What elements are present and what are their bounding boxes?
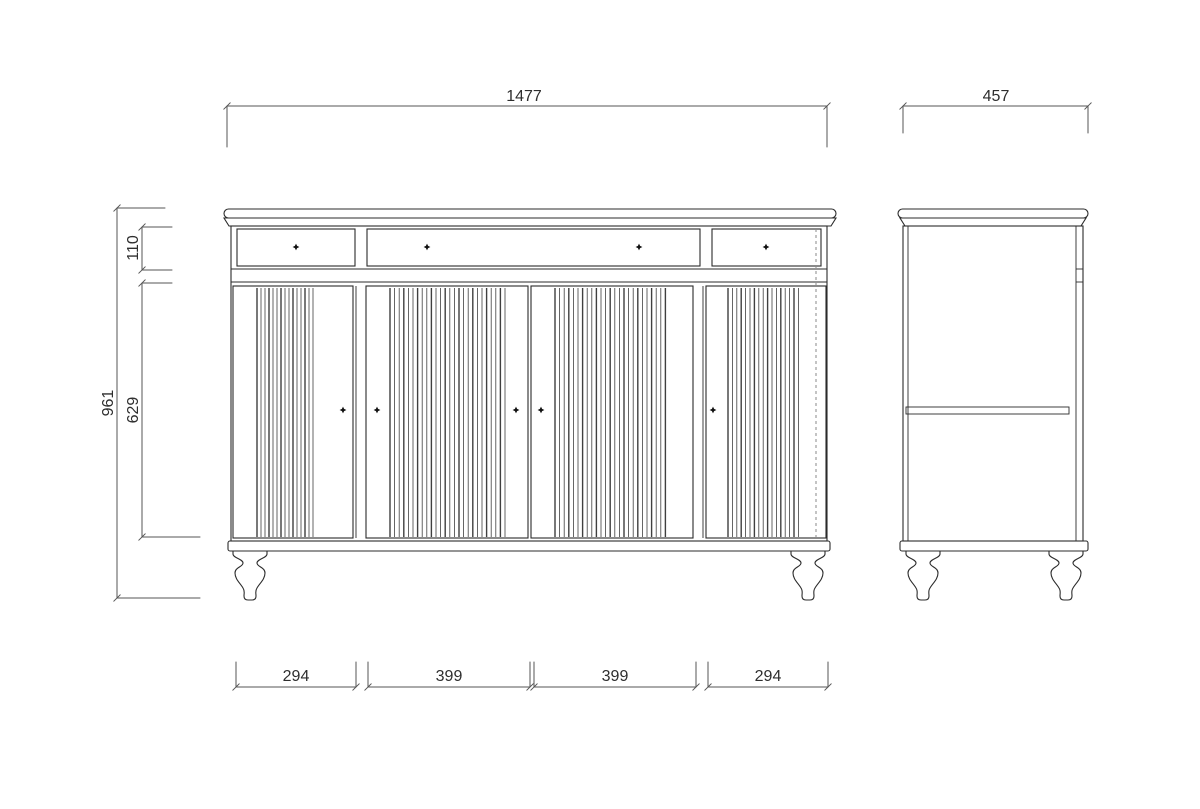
door-1-fluting [257,288,313,537]
knob-icon [293,244,300,251]
door-3-fluting [555,288,665,537]
knob-icon [374,407,381,414]
knob-icon [538,407,545,414]
front-mid-rail [231,269,827,282]
molding-cap [224,209,836,218]
door-4 [706,286,826,538]
dim-door-2-width-label: 399 [436,668,463,685]
drawer-center [367,229,700,266]
dim-door-4-width-label: 294 [755,668,782,685]
molding-cap [898,209,1088,218]
door-row [233,229,826,538]
side-view [898,209,1088,600]
dim-overall-width [224,103,830,147]
door-4-fluting [728,288,798,537]
drawer-row [237,229,821,266]
knob-icon [710,407,717,414]
side-top-molding [898,209,1088,226]
front-view [224,209,836,600]
dim-depth [900,103,1091,133]
knob-icon [513,407,520,414]
dim-overall-width-label: 1477 [506,88,542,105]
side-plinth [900,541,1088,551]
technical-drawing: 1477 457 961 110 [0,0,1200,809]
dim-door-height [139,280,200,540]
knob-icon [763,244,770,251]
side-carcass [903,226,1083,541]
knob-icon [636,244,643,251]
door-2-fluting [390,288,505,537]
dim-depth-label: 457 [983,88,1010,105]
cabinet-leg [906,551,940,600]
front-plinth [228,541,830,551]
shelf [906,407,1069,414]
cabinet-leg [233,551,267,600]
molding-band [900,218,1086,226]
dim-door-height-label: 629 [125,397,142,424]
front-carcass [231,226,827,541]
dim-door-1-width-label: 294 [283,668,310,685]
drawing-canvas: 1477 457 961 110 [0,0,1200,809]
front-top-molding [224,209,836,226]
dim-door-3-width-label: 399 [602,668,629,685]
dim-overall-height-label: 961 [100,390,117,417]
cabinet-leg [791,551,825,600]
knob-icon [340,407,347,414]
dim-drawer-height-label: 110 [125,235,142,261]
knob-icon [424,244,431,251]
dim-drawer-height [139,224,172,273]
cabinet-leg [1049,551,1083,600]
molding-band [224,218,836,226]
